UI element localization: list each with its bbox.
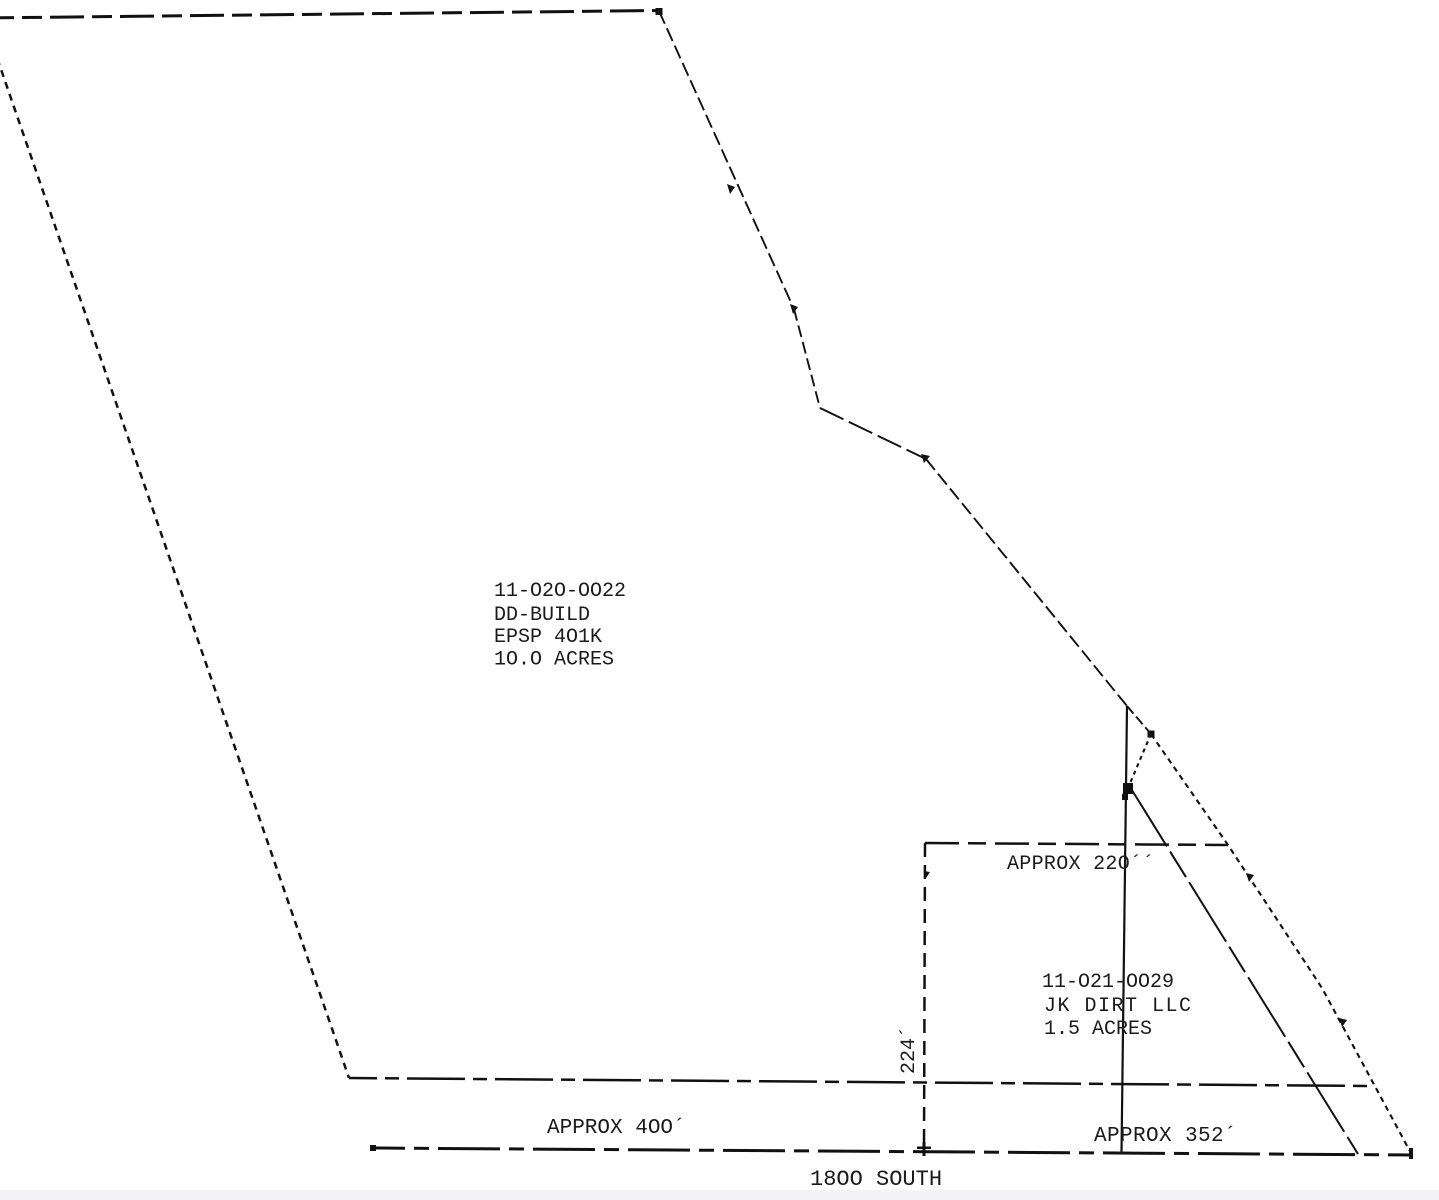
svg-text:11-O2O-OO22: 11-O2O-OO22 [494,580,626,603]
svg-text:APPROX 4OO´: APPROX 4OO´ [547,1117,686,1140]
svg-text:18OO SOUTH: 18OO SOUTH [810,1167,942,1192]
svg-text:APPROX 22O´´: APPROX 22O´´ [1007,853,1155,876]
svg-text:APPROX 352´: APPROX 352´ [1094,1125,1237,1148]
svg-text:JK DIRT LLC: JK DIRT LLC [1044,995,1193,1018]
svg-text:224´: 224´ [898,1026,921,1074]
svg-text:DD-BUILD: DD-BUILD [494,604,590,627]
svg-text:1O.O ACRES: 1O.O ACRES [494,649,614,672]
svg-text:1.5 ACRES: 1.5 ACRES [1044,1018,1152,1041]
svg-text:EPSP 4O1K: EPSP 4O1K [494,626,602,649]
svg-text:11-O21-OO29: 11-O21-OO29 [1042,971,1174,994]
